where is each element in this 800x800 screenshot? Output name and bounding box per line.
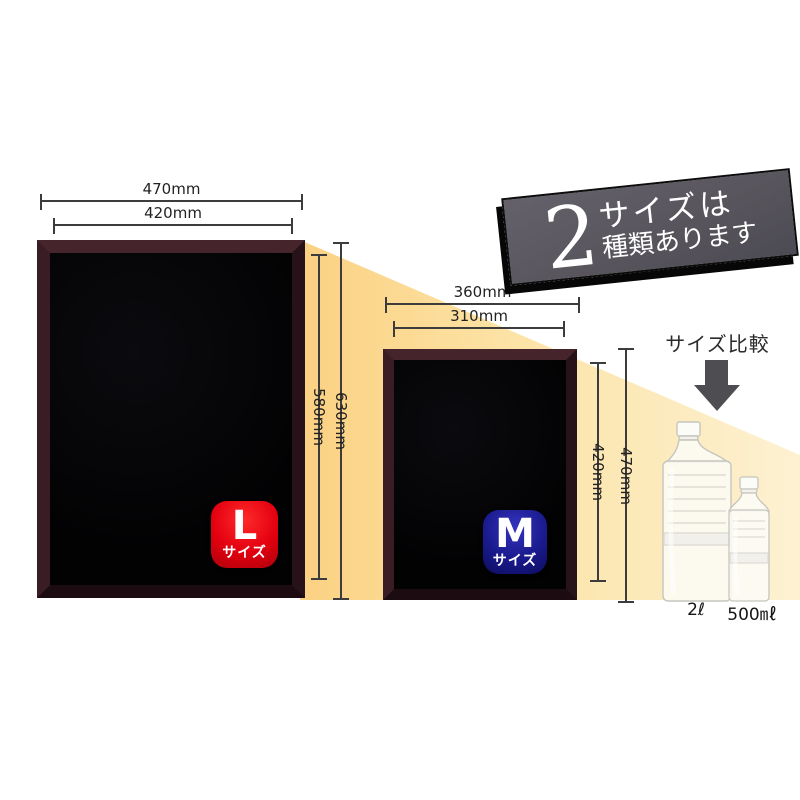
size-badge-medium: M サイズ xyxy=(483,510,547,574)
bottle-2l-image xyxy=(663,422,731,601)
dim-label-medium-inner-height: 420mm xyxy=(589,443,607,501)
dim-tick xyxy=(385,297,387,313)
down-arrow-stem xyxy=(705,360,728,385)
down-arrow-head xyxy=(694,385,740,411)
dim-tick xyxy=(311,254,327,256)
product-size-diagram: L サイズ M サイズ 470mm 420mm 630mm 580mm 360m… xyxy=(0,0,800,800)
dim-tick xyxy=(40,194,42,210)
dim-tick xyxy=(563,321,565,337)
badge-letter-medium: M xyxy=(495,517,535,551)
dim-medium-inner-width: 310mm xyxy=(393,327,565,329)
dim-tick xyxy=(291,218,293,234)
badge-suffix-medium: サイズ xyxy=(493,554,538,568)
dim-large-inner-height: 580mm xyxy=(318,254,320,580)
dim-tick xyxy=(618,601,634,603)
dim-tick xyxy=(333,598,349,600)
badge-suffix-large: サイズ xyxy=(222,546,267,560)
bottle-2l-label: 2ℓ xyxy=(672,600,720,620)
badge-letter-large: L xyxy=(232,509,258,543)
dim-large-inner-width: 420mm xyxy=(53,224,293,226)
dim-tick xyxy=(578,297,580,313)
banner-number: 2 xyxy=(541,204,601,271)
dim-label-large-inner-height: 580mm xyxy=(310,388,328,446)
dim-tick xyxy=(311,578,327,580)
dim-large-outer-height: 630mm xyxy=(340,242,342,600)
banner-text: サイズは 種類あります xyxy=(597,185,759,263)
dim-tick xyxy=(393,321,395,337)
size-comparison-label: サイズ比較 xyxy=(655,328,780,357)
pet-bottles-image xyxy=(650,415,800,607)
dim-label-medium-outer-width: 360mm xyxy=(454,283,512,301)
bottle-500ml-image xyxy=(729,477,769,601)
dim-medium-outer-width: 360mm xyxy=(385,303,580,305)
dim-medium-outer-height: 470mm xyxy=(625,348,627,603)
down-arrow-icon xyxy=(694,360,740,412)
dim-tick xyxy=(590,580,606,582)
dim-tick xyxy=(590,362,606,364)
blackboard-medium xyxy=(383,349,577,600)
dim-medium-inner-height: 420mm xyxy=(597,362,599,582)
dim-label-large-outer-width: 470mm xyxy=(143,180,201,198)
dim-large-outer-width: 470mm xyxy=(40,200,303,202)
dim-tick xyxy=(53,218,55,234)
dim-label-medium-inner-width: 310mm xyxy=(450,307,508,325)
dim-tick xyxy=(333,242,349,244)
bottle-500ml-label: 500㎖ xyxy=(720,600,784,625)
dim-tick xyxy=(301,194,303,210)
dim-label-large-inner-width: 420mm xyxy=(144,204,202,222)
dim-tick xyxy=(618,348,634,350)
dim-label-medium-outer-height: 470mm xyxy=(617,447,635,505)
dim-label-large-outer-height: 630mm xyxy=(332,392,350,450)
size-badge-large: L サイズ xyxy=(211,501,278,568)
